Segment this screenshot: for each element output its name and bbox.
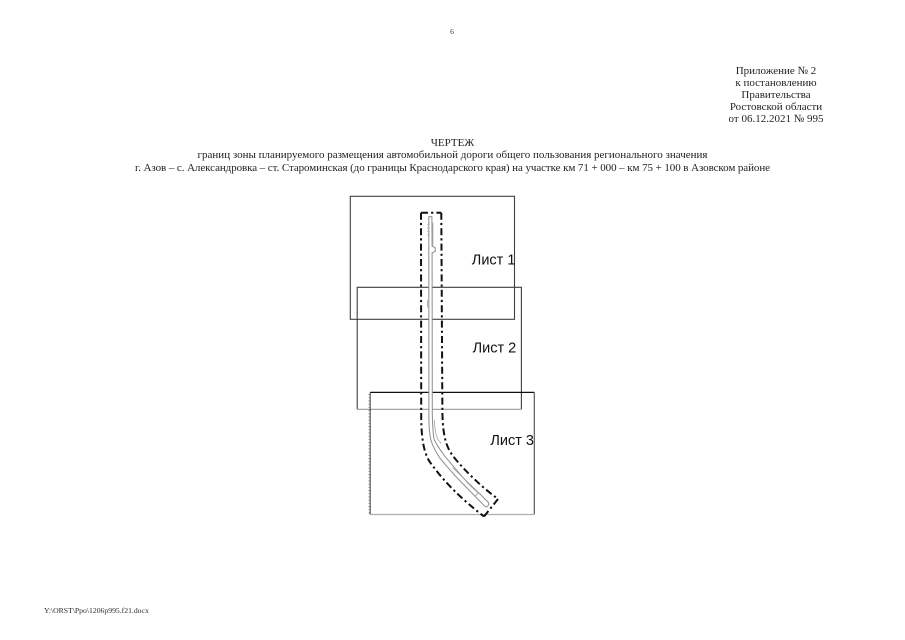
svg-text:Лист 3: Лист 3 — [490, 433, 534, 449]
svg-text:Лист 1: Лист 1 — [472, 253, 516, 269]
svg-text:Лист 2: Лист 2 — [473, 340, 517, 356]
